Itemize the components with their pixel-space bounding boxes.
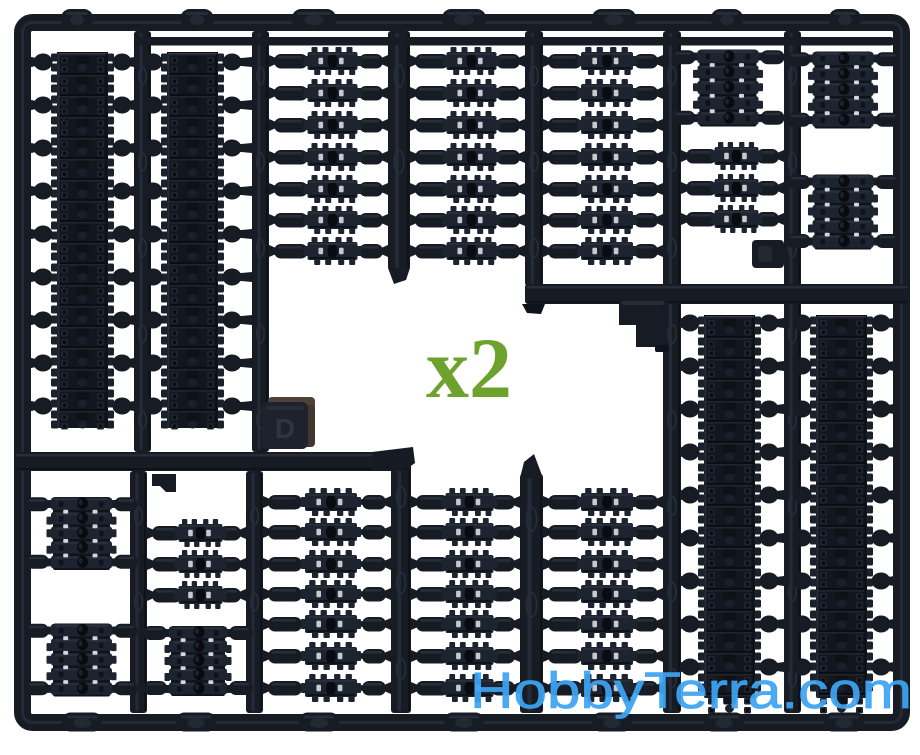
svg-text:D: D [275, 413, 295, 444]
svg-text:HobbyTerra.com: HobbyTerra.com [470, 662, 912, 719]
svg-text:x2: x2 [426, 320, 512, 416]
